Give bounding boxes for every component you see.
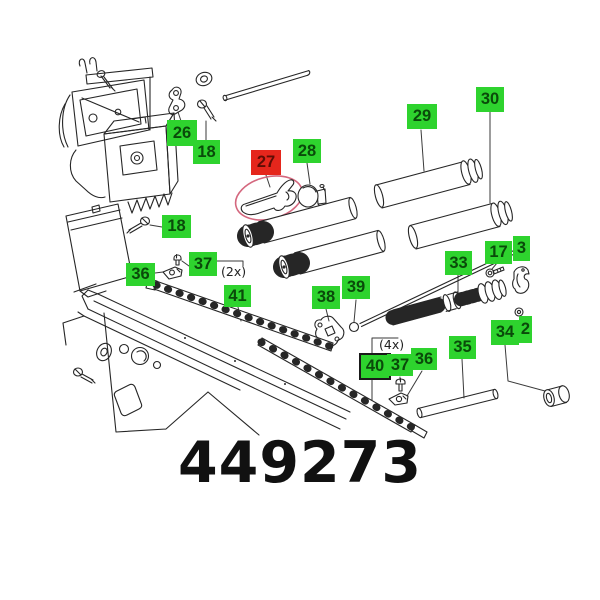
part-label-41[interactable]: 41 [224, 285, 251, 307]
part-label-28[interactable]: 28 [293, 139, 321, 163]
part-label-18[interactable]: 18 [193, 140, 220, 164]
part-label-30[interactable]: 30 [476, 87, 504, 112]
screw-18-top [198, 100, 217, 121]
rod-35-drawing [416, 389, 499, 418]
exploded-view-drawing [0, 0, 600, 600]
part-label-35[interactable]: 35 [449, 336, 476, 359]
clip-36-bottom-drawing [389, 393, 408, 405]
part-label-34[interactable]: 34 [491, 320, 519, 345]
part-label-39[interactable]: 39 [342, 276, 370, 299]
part-label-2[interactable]: 2 [519, 316, 532, 343]
tube-b-drawing [277, 230, 387, 279]
thin-rod-drawing [222, 71, 309, 102]
quantity-note-2x: (2x) [221, 264, 246, 279]
clip-36-top-drawing [163, 267, 182, 279]
part-label-18[interactable]: 18 [162, 215, 191, 238]
part-label-36[interactable]: 36 [126, 263, 155, 286]
ring-drawing [515, 308, 523, 316]
part-label-27-highlighted[interactable]: 27 [251, 150, 281, 175]
hook-part-drawing [513, 267, 529, 293]
part-label-37[interactable]: 37 [189, 252, 217, 276]
tube-29-drawing [373, 158, 484, 208]
part-label-36[interactable]: 36 [411, 348, 437, 370]
screw-17-drawing [486, 267, 504, 277]
parts-diagram-page: { "diagram": { "part_number": "449273", … [0, 0, 600, 600]
plug-34-drawing [542, 384, 571, 407]
drawing-number: 449273 [0, 430, 600, 496]
hook-piece [79, 58, 97, 73]
part-label-37[interactable]: 37 [387, 354, 413, 376]
washer-drawing [194, 70, 213, 88]
part-label-38[interactable]: 38 [312, 286, 340, 309]
screw-37-bottom-drawing [396, 379, 405, 392]
quantity-note-4x: (4x) [379, 337, 404, 352]
part-label-33[interactable]: 33 [445, 251, 472, 275]
screw-37-top-drawing [174, 255, 181, 266]
part-label-17[interactable]: 17 [485, 241, 512, 264]
cover-plate-drawing [66, 204, 132, 297]
clamp-26-part [169, 87, 185, 114]
motor-housing-drawing [59, 58, 185, 213]
screw-table [74, 368, 96, 383]
part-label-3[interactable]: 3 [513, 236, 530, 261]
part-label-29[interactable]: 29 [407, 104, 437, 129]
screw-18-left [127, 217, 150, 233]
